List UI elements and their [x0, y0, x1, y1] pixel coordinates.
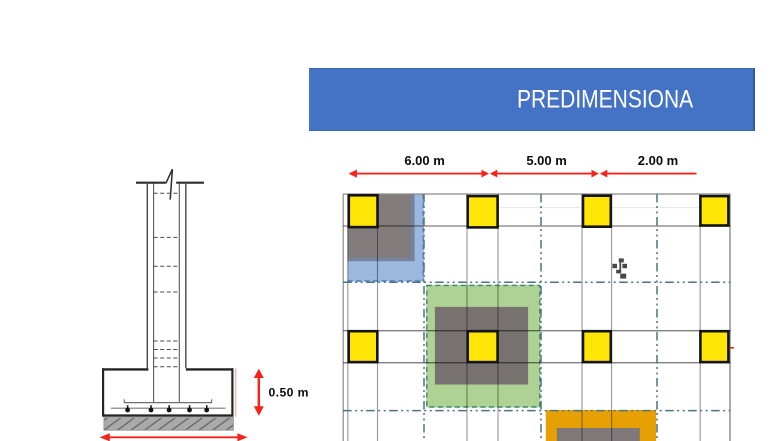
svg-text:2.00 m: 2.00 m — [638, 153, 678, 168]
svg-text:5.00 m: 5.00 m — [526, 153, 566, 168]
svg-text:6.00 m: 6.00 m — [404, 153, 444, 168]
svg-text:0.50 m: 0.50 m — [269, 386, 309, 400]
